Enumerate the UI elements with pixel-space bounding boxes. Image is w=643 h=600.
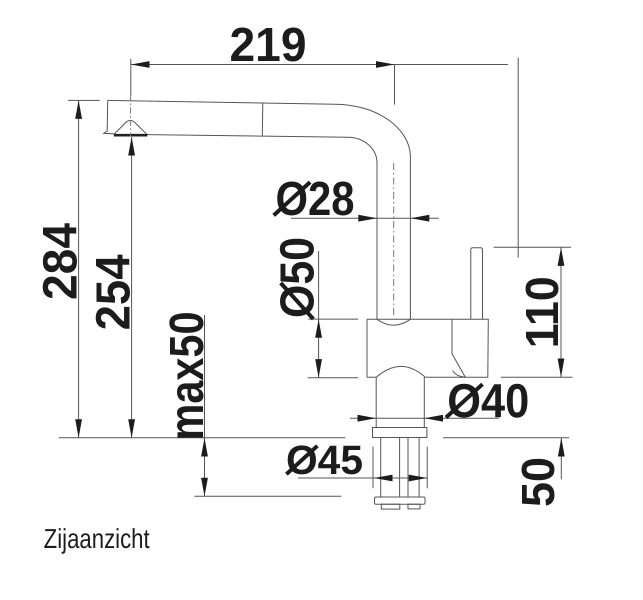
svg-text:110: 110 [516, 276, 568, 348]
svg-text:O45: O45 [286, 437, 363, 483]
svg-text:O50: O50 [272, 237, 325, 318]
svg-text:O28: O28 [275, 173, 354, 226]
svg-text:50: 50 [512, 457, 564, 507]
svg-text:O40: O40 [447, 375, 529, 428]
svg-text:Zijaanzicht: Zijaanzicht [44, 523, 150, 554]
svg-text:max50: max50 [161, 312, 214, 441]
svg-text:284: 284 [34, 223, 87, 300]
svg-text:254: 254 [87, 254, 140, 330]
svg-text:219: 219 [229, 19, 306, 72]
